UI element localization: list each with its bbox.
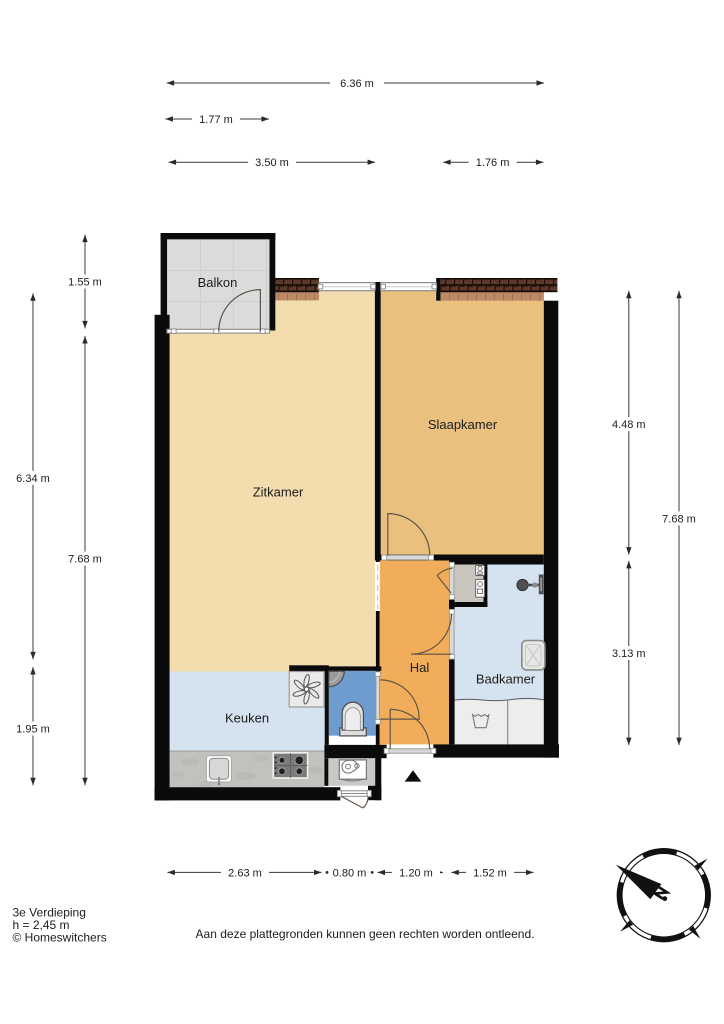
svg-text:1.20 m: 1.20 m	[399, 867, 433, 879]
svg-text:Slaapkamer: Slaapkamer	[428, 417, 498, 432]
svg-text:© Homeswitchers: © Homeswitchers	[13, 931, 107, 945]
svg-text:3.50 m: 3.50 m	[255, 157, 289, 169]
svg-text:2.63 m: 2.63 m	[228, 867, 262, 879]
svg-text:1.52 m: 1.52 m	[473, 867, 507, 879]
svg-text:1.77 m: 1.77 m	[199, 114, 233, 126]
svg-text:Badkamer: Badkamer	[476, 672, 536, 687]
svg-text:6.36 m: 6.36 m	[340, 78, 374, 90]
svg-text:6.34 m: 6.34 m	[16, 473, 50, 485]
svg-text:Hal: Hal	[410, 660, 430, 675]
svg-text:1.55 m: 1.55 m	[68, 277, 102, 289]
svg-text:Balkon: Balkon	[198, 275, 238, 290]
svg-text:Zitkamer: Zitkamer	[253, 485, 304, 500]
svg-text:0.80 m: 0.80 m	[333, 867, 367, 879]
svg-text:7.68 m: 7.68 m	[662, 513, 696, 525]
svg-text:1.95 m: 1.95 m	[16, 724, 50, 736]
svg-text:Aan deze plattegronden kunnen: Aan deze plattegronden kunnen geen recht…	[196, 927, 535, 941]
svg-text:4.48 m: 4.48 m	[612, 419, 646, 431]
svg-text:7.68 m: 7.68 m	[68, 554, 102, 566]
svg-text:3.13 m: 3.13 m	[612, 648, 646, 660]
svg-text:1.76 m: 1.76 m	[476, 157, 510, 169]
svg-text:Keuken: Keuken	[225, 711, 269, 726]
